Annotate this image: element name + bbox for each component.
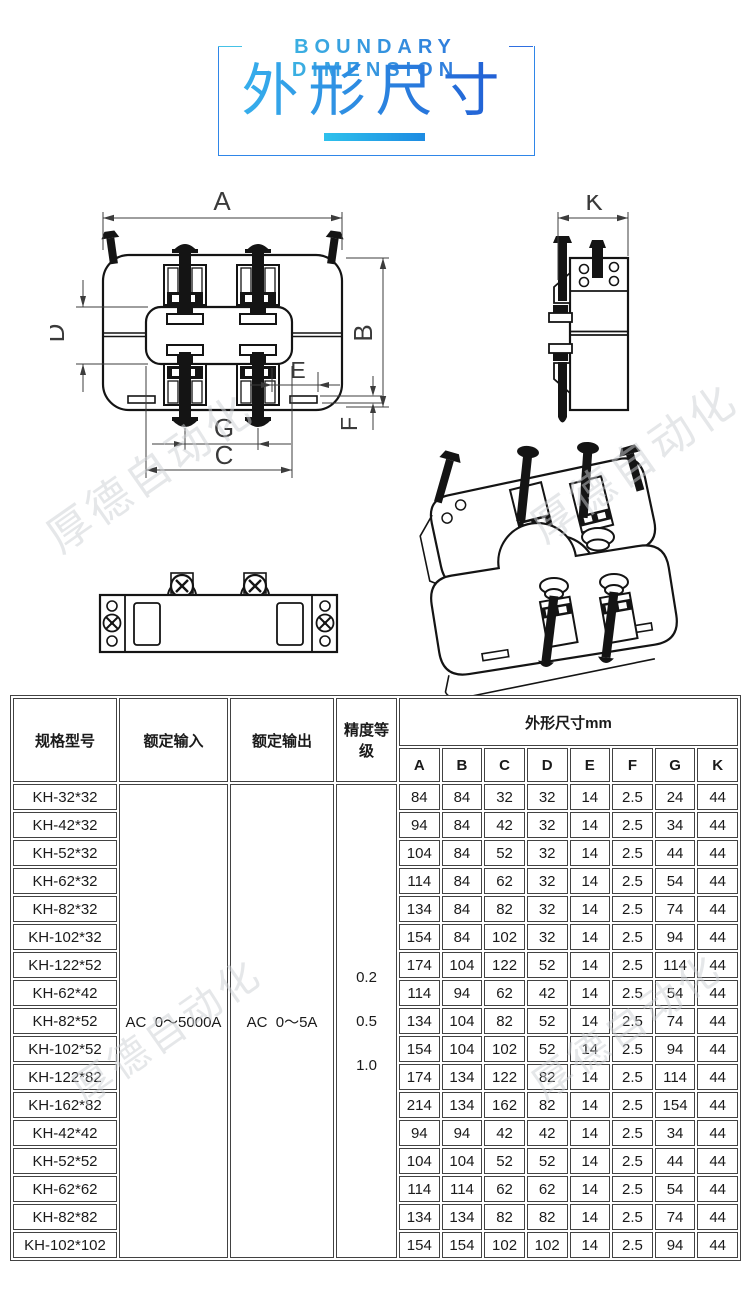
- dim-cell: 94: [399, 1120, 440, 1146]
- dim-cell: 34: [655, 1120, 696, 1146]
- dim-cell: 2.5: [612, 1036, 653, 1062]
- dim-cell: 14: [570, 1120, 611, 1146]
- dim-cell: 94: [399, 812, 440, 838]
- dim-cell: 14: [570, 1204, 611, 1230]
- col-header-dim-c: C: [484, 748, 525, 782]
- model-cell: KH-62*32: [13, 868, 117, 894]
- col-header-dim-b: B: [442, 748, 483, 782]
- dim-cell: 52: [527, 952, 568, 978]
- dim-cell: 14: [570, 924, 611, 950]
- dim-cell: 82: [484, 896, 525, 922]
- dim-cell: 52: [527, 1036, 568, 1062]
- dim-cell: 102: [527, 1232, 568, 1258]
- dim-cell: 104: [442, 1148, 483, 1174]
- dim-cell: 104: [442, 952, 483, 978]
- dim-cell: 44: [697, 1008, 738, 1034]
- dim-cell: 42: [527, 1120, 568, 1146]
- model-cell: KH-52*32: [13, 840, 117, 866]
- model-cell: KH-122*52: [13, 952, 117, 978]
- dim-label-k: K: [585, 195, 603, 216]
- dim-cell: 84: [442, 924, 483, 950]
- dim-cell: 14: [570, 812, 611, 838]
- side-view-drawing: K: [540, 195, 655, 440]
- dim-cell: 44: [697, 812, 738, 838]
- dim-cell: 94: [655, 1232, 696, 1258]
- spec-table: 规格型号 额定输入 额定输出 精度等级 外形尺寸mm A B C D E F G…: [10, 695, 741, 1261]
- model-cell: KH-52*52: [13, 1148, 117, 1174]
- dim-label-d: D: [50, 324, 70, 343]
- model-cell: KH-82*32: [13, 896, 117, 922]
- dim-cell: 14: [570, 784, 611, 810]
- rated-input-cell: AC 0～5000A: [119, 784, 228, 1258]
- dim-cell: 104: [399, 840, 440, 866]
- model-cell: KH-122*82: [13, 1064, 117, 1090]
- dim-cell: 114: [655, 952, 696, 978]
- dim-cell: 2.5: [612, 980, 653, 1006]
- dim-cell: 2.5: [612, 1120, 653, 1146]
- dim-cell: 32: [484, 784, 525, 810]
- model-cell: KH-32*32: [13, 784, 117, 810]
- dim-cell: 154: [399, 1232, 440, 1258]
- dim-cell: 14: [570, 1036, 611, 1062]
- dim-cell: 32: [527, 896, 568, 922]
- dim-cell: 2.5: [612, 924, 653, 950]
- col-header-rated-input: 额定输入: [119, 698, 228, 782]
- dim-cell: 94: [655, 1036, 696, 1062]
- dim-cell: 44: [697, 868, 738, 894]
- dim-cell: 134: [442, 1092, 483, 1118]
- model-cell: KH-62*62: [13, 1176, 117, 1202]
- dim-cell: 44: [655, 1148, 696, 1174]
- dim-cell: 154: [399, 924, 440, 950]
- dim-cell: 52: [527, 1148, 568, 1174]
- model-cell: KH-102*52: [13, 1036, 117, 1062]
- col-header-dim-k: K: [697, 748, 738, 782]
- dim-cell: 104: [399, 1148, 440, 1174]
- dim-cell: 62: [484, 980, 525, 1006]
- dim-cell: 82: [527, 1064, 568, 1090]
- dim-cell: 104: [442, 1036, 483, 1062]
- spec-table-wrap: 规格型号 额定输入 额定输出 精度等级 外形尺寸mm A B C D E F G…: [10, 695, 741, 1261]
- dim-cell: 94: [442, 980, 483, 1006]
- model-cell: KH-102*102: [13, 1232, 117, 1258]
- dim-cell: 122: [484, 952, 525, 978]
- dim-cell: 82: [484, 1204, 525, 1230]
- dim-cell: 2.5: [612, 812, 653, 838]
- dim-cell: 84: [442, 840, 483, 866]
- dim-cell: 44: [697, 1120, 738, 1146]
- dim-cell: 34: [655, 812, 696, 838]
- dim-cell: 82: [527, 1204, 568, 1230]
- dim-cell: 74: [655, 896, 696, 922]
- dim-label-f: F: [336, 417, 362, 431]
- dim-cell: 2.5: [612, 1092, 653, 1118]
- dim-cell: 74: [655, 1008, 696, 1034]
- dim-cell: 134: [399, 1008, 440, 1034]
- dim-cell: 44: [697, 1204, 738, 1230]
- dim-cell: 82: [484, 1008, 525, 1034]
- dim-cell: 174: [399, 1064, 440, 1090]
- dim-cell: 42: [527, 980, 568, 1006]
- dim-cell: 32: [527, 840, 568, 866]
- dim-cell: 44: [697, 784, 738, 810]
- dim-cell: 42: [484, 812, 525, 838]
- dim-cell: 14: [570, 1008, 611, 1034]
- col-header-dim-f: F: [612, 748, 653, 782]
- dim-cell: 32: [527, 812, 568, 838]
- dim-cell: 24: [655, 784, 696, 810]
- dim-cell: 154: [655, 1092, 696, 1118]
- dim-cell: 94: [655, 924, 696, 950]
- dim-cell: 174: [399, 952, 440, 978]
- dim-cell: 14: [570, 868, 611, 894]
- title-zh: 外形尺寸: [218, 56, 533, 126]
- spec-table-body: KH-32*32AC 0～5000AAC 0～5A0.20.51.0848432…: [13, 784, 738, 1258]
- dim-cell: 44: [697, 896, 738, 922]
- dim-cell: 44: [697, 1232, 738, 1258]
- dim-cell: 114: [399, 980, 440, 1006]
- dim-cell: 102: [484, 1232, 525, 1258]
- model-cell: KH-42*32: [13, 812, 117, 838]
- dim-cell: 162: [484, 1092, 525, 1118]
- title-underline: [324, 133, 425, 141]
- dim-cell: 54: [655, 1176, 696, 1202]
- page: BOUNDARY DIMENSION 外形尺寸 厚德自动化 厚德自动化 厚德自动…: [0, 0, 750, 1300]
- dim-cell: 52: [484, 840, 525, 866]
- model-cell: KH-62*42: [13, 980, 117, 1006]
- dim-cell: 62: [484, 1176, 525, 1202]
- dim-cell: 134: [399, 896, 440, 922]
- dim-cell: 2.5: [612, 1176, 653, 1202]
- dim-cell: 44: [697, 1036, 738, 1062]
- dim-label-b: B: [348, 324, 378, 341]
- dim-cell: 44: [697, 1148, 738, 1174]
- accuracy-value: 1.0: [337, 1057, 396, 1074]
- dim-cell: 84: [442, 896, 483, 922]
- dim-cell: 114: [442, 1176, 483, 1202]
- dim-cell: 2.5: [612, 1148, 653, 1174]
- accuracy-cell: 0.20.51.0: [336, 784, 397, 1258]
- dim-cell: 44: [697, 1176, 738, 1202]
- dim-cell: 102: [484, 924, 525, 950]
- dim-cell: 14: [570, 1176, 611, 1202]
- dim-cell: 122: [484, 1064, 525, 1090]
- dim-cell: 214: [399, 1092, 440, 1118]
- model-cell: KH-162*82: [13, 1092, 117, 1118]
- dim-cell: 14: [570, 896, 611, 922]
- dim-cell: 32: [527, 868, 568, 894]
- dim-label-e: E: [290, 357, 305, 383]
- dim-cell: 114: [655, 1064, 696, 1090]
- dim-cell: 2.5: [612, 784, 653, 810]
- dim-cell: 82: [527, 1092, 568, 1118]
- col-header-dim-d: D: [527, 748, 568, 782]
- accuracy-value: 0.5: [337, 1013, 396, 1030]
- dim-cell: 54: [655, 868, 696, 894]
- dim-cell: 44: [697, 1092, 738, 1118]
- dim-cell: 14: [570, 980, 611, 1006]
- dim-cell: 44: [697, 924, 738, 950]
- dim-cell: 114: [399, 868, 440, 894]
- dim-cell: 74: [655, 1204, 696, 1230]
- model-cell: KH-42*42: [13, 1120, 117, 1146]
- dim-cell: 44: [697, 980, 738, 1006]
- accuracy-value: 0.2: [337, 969, 396, 986]
- dim-cell: 14: [570, 1232, 611, 1258]
- dim-label-a: A: [213, 192, 231, 216]
- dim-cell: 14: [570, 1064, 611, 1090]
- dim-cell: 2.5: [612, 840, 653, 866]
- dim-cell: 14: [570, 952, 611, 978]
- dim-cell: 52: [527, 1008, 568, 1034]
- dim-cell: 2.5: [612, 1008, 653, 1034]
- dim-cell: 44: [697, 1064, 738, 1090]
- table-row: KH-32*32AC 0～5000AAC 0～5A0.20.51.0848432…: [13, 784, 738, 810]
- dim-label-c: C: [215, 440, 234, 470]
- model-cell: KH-82*52: [13, 1008, 117, 1034]
- col-header-rated-output: 额定输出: [230, 698, 334, 782]
- dim-cell: 134: [442, 1064, 483, 1090]
- dim-cell: 154: [442, 1232, 483, 1258]
- col-header-model: 规格型号: [13, 698, 117, 782]
- col-header-accuracy: 精度等级: [336, 698, 397, 782]
- dim-cell: 54: [655, 980, 696, 1006]
- bottom-view-drawing: [90, 560, 350, 665]
- dim-cell: 134: [399, 1204, 440, 1230]
- dim-cell: 84: [442, 868, 483, 894]
- dim-cell: 52: [484, 1148, 525, 1174]
- dim-cell: 2.5: [612, 896, 653, 922]
- model-cell: KH-82*82: [13, 1204, 117, 1230]
- dim-cell: 94: [442, 1120, 483, 1146]
- dim-cell: 62: [527, 1176, 568, 1202]
- col-header-dim-a: A: [399, 748, 440, 782]
- dim-cell: 154: [399, 1036, 440, 1062]
- dim-cell: 134: [442, 1204, 483, 1230]
- rated-output-cell: AC 0～5A: [230, 784, 334, 1258]
- dim-cell: 44: [697, 840, 738, 866]
- dim-cell: 102: [484, 1036, 525, 1062]
- dim-cell: 2.5: [612, 868, 653, 894]
- dim-label-g: G: [214, 413, 234, 443]
- dim-cell: 84: [442, 784, 483, 810]
- dim-cell: 32: [527, 784, 568, 810]
- col-header-dim-e: E: [570, 748, 611, 782]
- dim-cell: 84: [442, 812, 483, 838]
- dim-cell: 14: [570, 1092, 611, 1118]
- dim-cell: 114: [399, 1176, 440, 1202]
- dim-cell: 44: [697, 952, 738, 978]
- col-header-dim-g: G: [655, 748, 696, 782]
- dim-cell: 14: [570, 1148, 611, 1174]
- front-view-drawing: A B D E F G C: [50, 192, 410, 487]
- dim-cell: 104: [442, 1008, 483, 1034]
- model-cell: KH-102*32: [13, 924, 117, 950]
- perspective-view-drawing: [408, 438, 708, 698]
- dim-cell: 2.5: [612, 1064, 653, 1090]
- dim-cell: 2.5: [612, 952, 653, 978]
- dim-cell: 14: [570, 840, 611, 866]
- dim-cell: 32: [527, 924, 568, 950]
- dim-cell: 84: [399, 784, 440, 810]
- dim-cell: 2.5: [612, 1204, 653, 1230]
- dim-cell: 2.5: [612, 1232, 653, 1258]
- dim-cell: 42: [484, 1120, 525, 1146]
- dim-cell: 62: [484, 868, 525, 894]
- dim-cell: 44: [655, 840, 696, 866]
- col-header-dimensions: 外形尺寸mm: [399, 698, 738, 746]
